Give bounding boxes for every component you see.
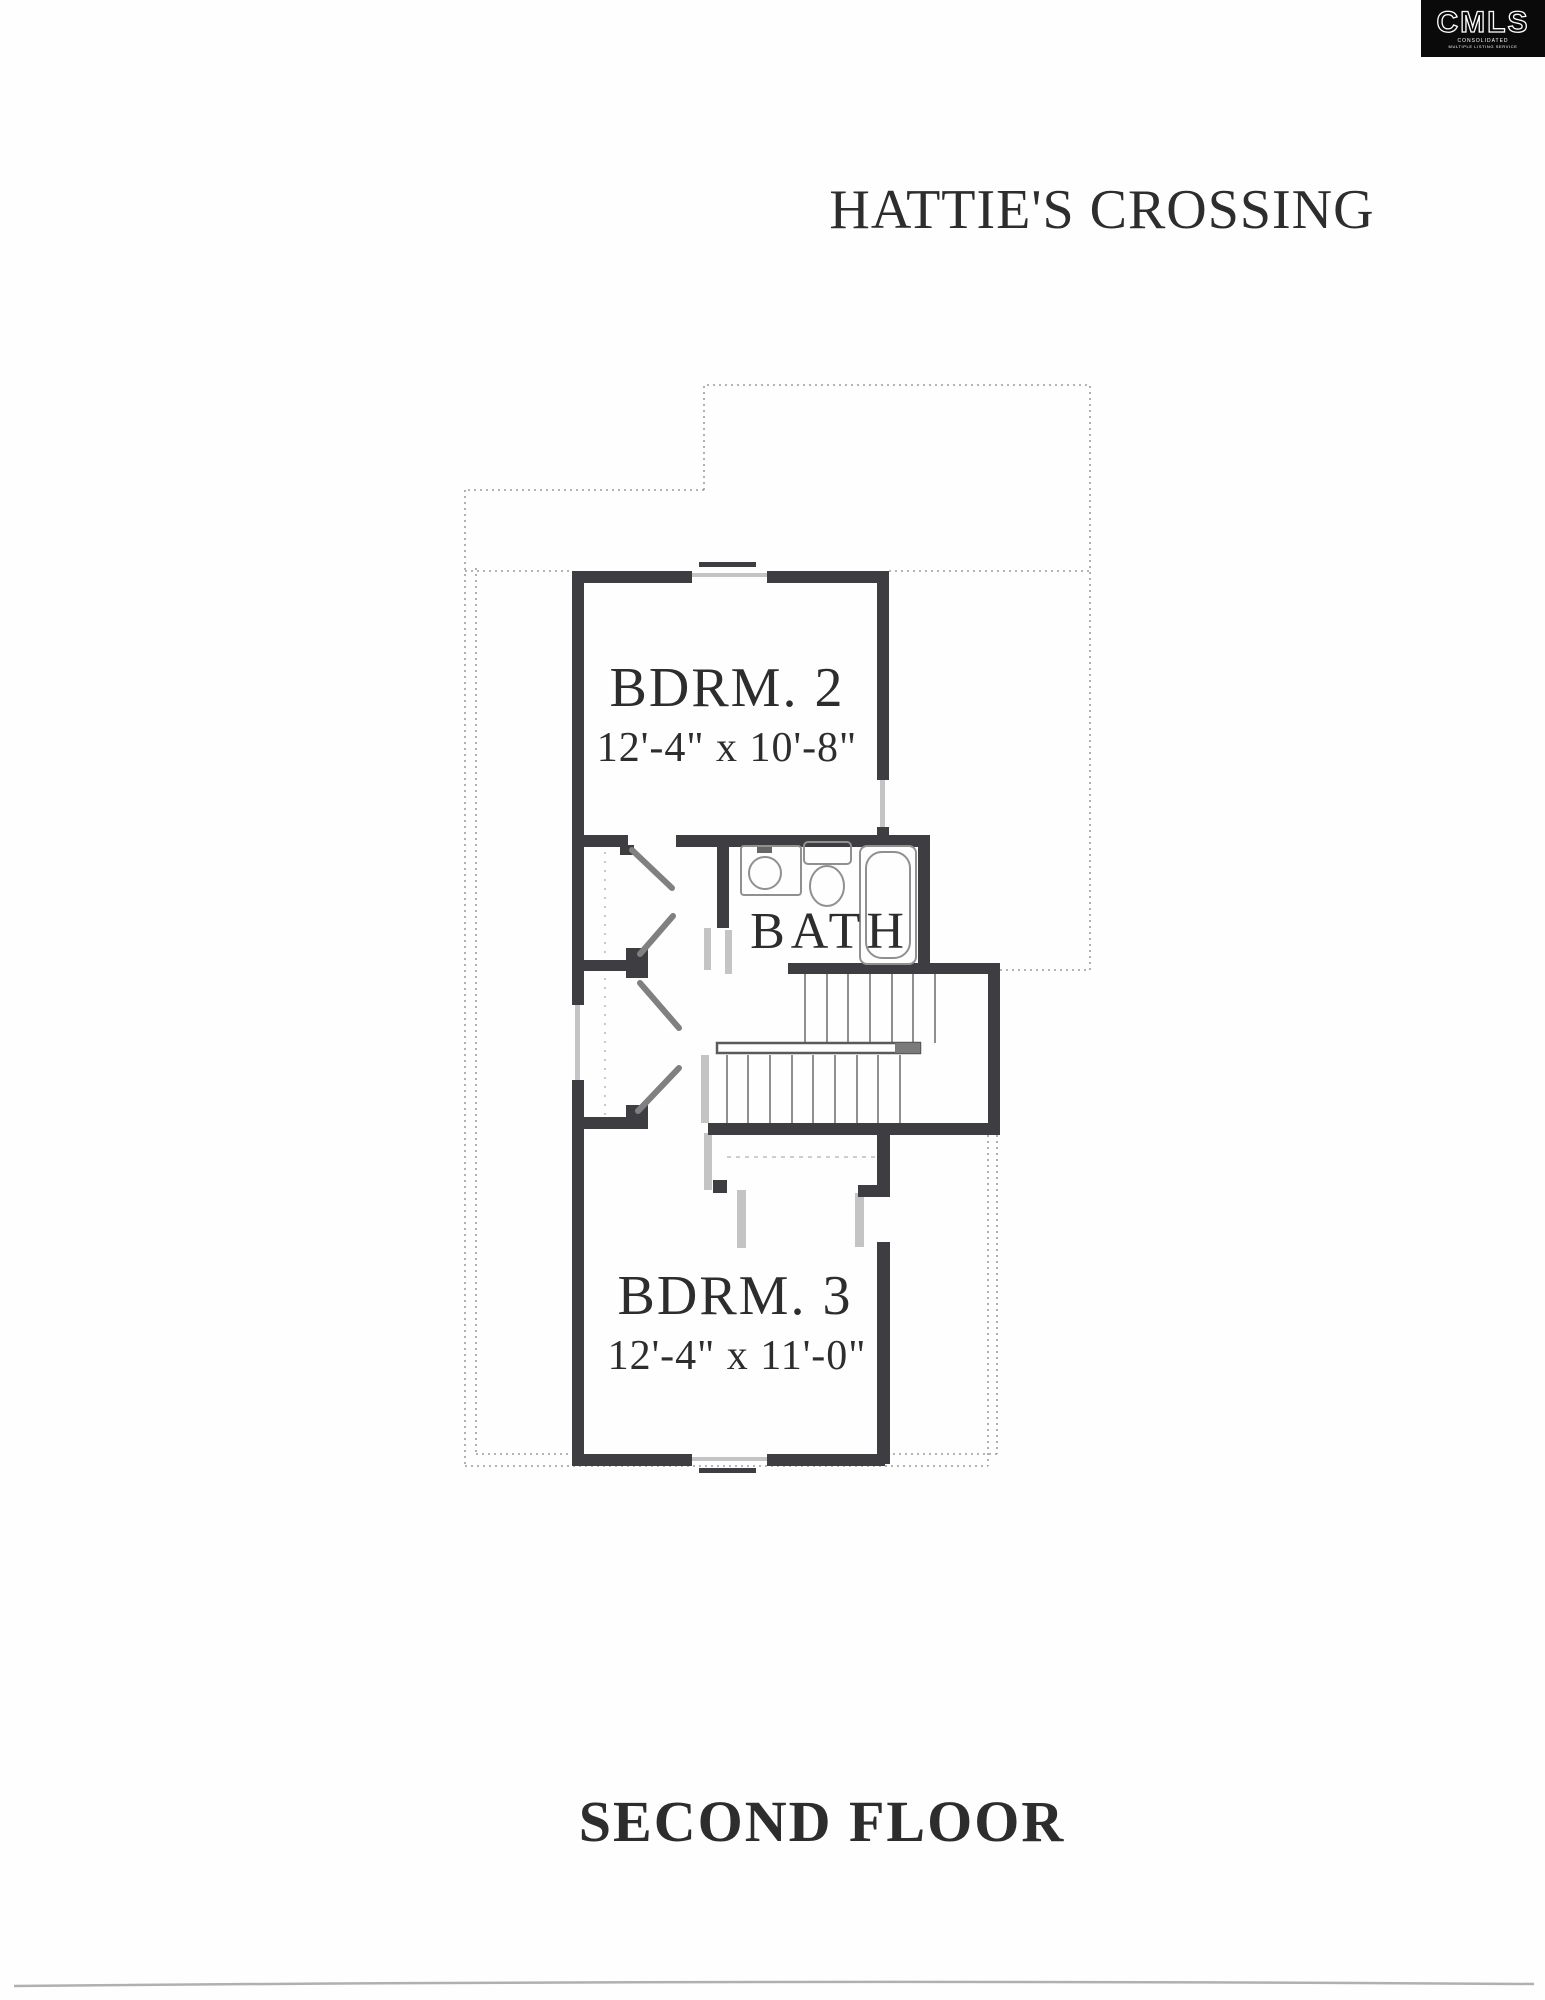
bdrm3-entry-jamb-bar (704, 1133, 712, 1190)
bdrm3-right-wall-lower (877, 1242, 890, 1464)
hall-upper-wall (572, 960, 628, 971)
bdrm3-dimensions: 12'-4" x 11'-0" (608, 1333, 867, 1379)
hall-upper-door-leaf (640, 916, 673, 954)
bdrm2-top-window-sill (699, 562, 756, 567)
staircase (717, 974, 935, 1123)
bdrm2-dimensions: 12'-4" x 10'-8" (597, 725, 857, 771)
bdrm3-bottom-wall-left (572, 1454, 692, 1466)
bdrm2-label: BDRM. 2 (610, 657, 845, 719)
plan-title: HATTIE'S CROSSING (829, 179, 1374, 241)
bdrm3-door-leaf-right (855, 1193, 864, 1247)
bdrm3-bottom-wall-right (767, 1454, 885, 1466)
bdrm2-door-leaf (632, 850, 672, 888)
floorplan-drawing: HATTIE'S CROSSING BDRM. 2 12'-4" x 10'-8… (0, 0, 1545, 2000)
toilet-tank (757, 847, 772, 853)
stair-bottom-wall (708, 1123, 1000, 1135)
stair-handrail-end (895, 1043, 920, 1053)
labels: HATTIE'S CROSSING BDRM. 2 12'-4" x 10'-8… (579, 179, 1375, 1854)
stair-handrail (717, 1043, 920, 1053)
bdrm2-top-wall-left (572, 571, 692, 583)
bdrm3-door-leaf-left (737, 1190, 746, 1248)
toilet-bowl (749, 857, 781, 889)
stair-stringer (701, 1055, 709, 1123)
window-top (692, 573, 767, 577)
bdrm2-right-wall (877, 571, 889, 780)
scanned-floorplan-page: CMLS CONSOLIDATED MULTIPLE LISTING SERVI… (0, 0, 1545, 2000)
window-bottom (692, 1457, 767, 1461)
left-wall-lower (572, 1080, 584, 1464)
bdrm3-bottom-window-sill (699, 1468, 756, 1473)
bdrm3-label: BDRM. 3 (618, 1265, 853, 1327)
floor-label: SECOND FLOOR (579, 1789, 1065, 1854)
stair-right-wall (988, 963, 1000, 1135)
bath-door-leaf-b (725, 930, 732, 974)
scan-artifact-line (14, 1982, 1534, 1986)
hall-lower-door-leaf (638, 1068, 679, 1111)
bdrm3-right-wall-upper (877, 1135, 890, 1197)
bath-left-wall (717, 835, 729, 928)
bath-label: BATH (750, 903, 910, 960)
left-wall-upper (572, 571, 584, 1005)
bdrm3-entry-nub (713, 1180, 727, 1193)
window-right-wall (880, 780, 885, 827)
bdrm3-closet-stub (858, 1185, 877, 1197)
stairhall-door-leaf (640, 983, 679, 1028)
window-left-wall (575, 1005, 580, 1080)
sink-bowl (810, 866, 844, 906)
door-leaves (632, 850, 679, 1111)
bdrm2-top-wall-right (767, 571, 885, 583)
bdrm2-bottom-wall (572, 835, 628, 847)
bath-door-leaf-a (704, 928, 711, 970)
hall-lower-wall (572, 1117, 628, 1129)
bath-right-wall (918, 835, 930, 968)
